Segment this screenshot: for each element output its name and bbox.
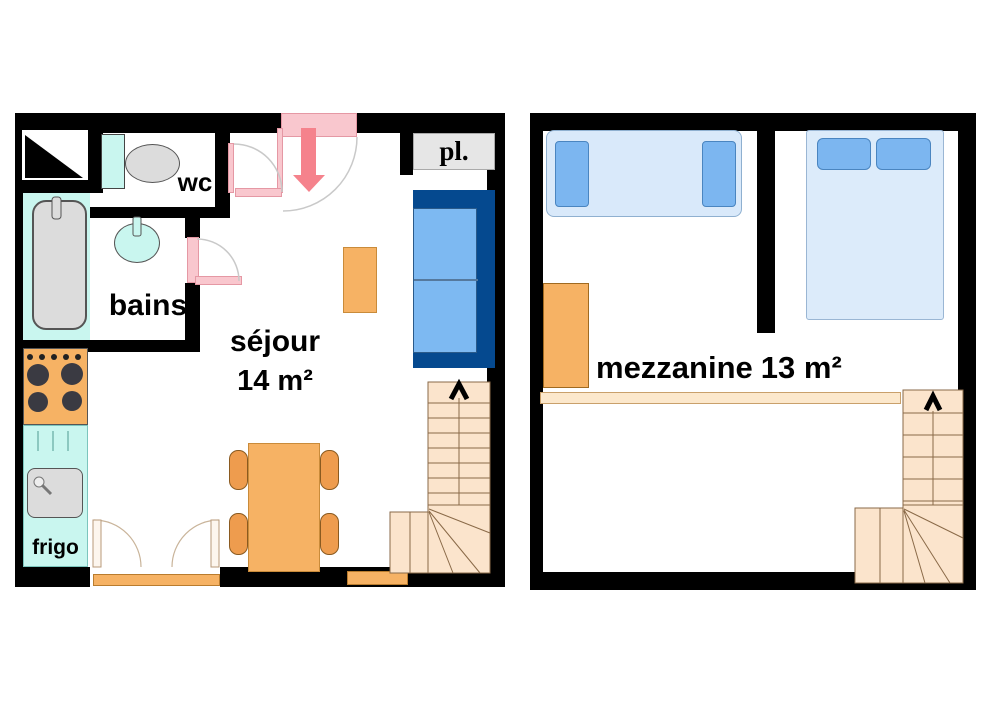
wc-door-swing-arc (234, 144, 282, 192)
staircase-floor1 (390, 382, 490, 573)
basin-faucet-icon (133, 217, 141, 236)
floor-plan-canvas: wc bains frigo séjour 14 m² pl. (0, 0, 1000, 707)
room-area-sejour: 14 m² (200, 367, 350, 396)
balcony-door-leaf-right (211, 520, 219, 567)
room-label-wc: wc (165, 169, 225, 195)
room-label-mezzanine: mezzanine (596, 352, 753, 383)
counter-lines (38, 431, 68, 451)
stove-burners (27, 354, 83, 412)
bathtub-faucet-icon (52, 197, 61, 219)
corner-box-triangle-icon (25, 135, 83, 178)
floor1-plan: wc bains frigo séjour 14 m² pl. (15, 113, 505, 587)
entry-arrow-icon (293, 128, 325, 192)
balcony-door-leaf-left (93, 520, 101, 567)
room-label-sejour: séjour (200, 327, 350, 357)
floor2-plan: mezzanine 13 m² (530, 113, 976, 590)
room-label-frigo: frigo (23, 537, 88, 558)
room-label-bains: bains (93, 291, 203, 321)
entry-door-swing-arc (283, 137, 357, 211)
bains-door-swing-arc (197, 239, 239, 281)
mezzanine-label-row: mezzanine 13 m² (596, 352, 842, 383)
sink-faucet-icon (34, 477, 51, 494)
room-label-placard: pl. (413, 138, 495, 165)
room-area-mezzanine: 13 m² (761, 352, 842, 383)
staircase-floor2 (855, 390, 963, 583)
